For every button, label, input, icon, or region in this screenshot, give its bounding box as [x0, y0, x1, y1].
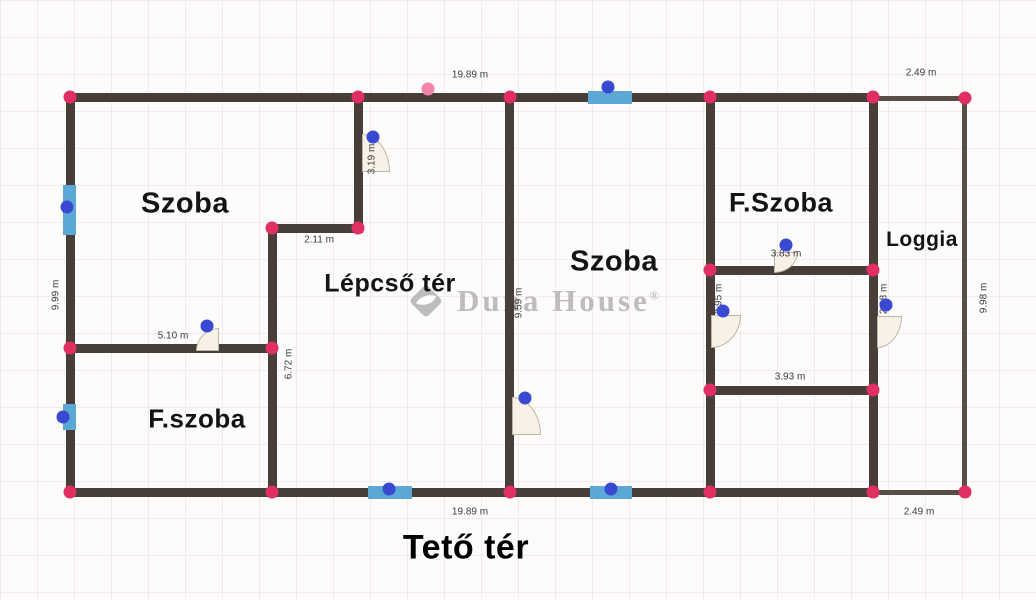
wall-segment[interactable]	[878, 490, 967, 495]
room-label: Szoba	[570, 246, 658, 279]
room-label: Szoba	[141, 188, 229, 221]
corner-handle[interactable]	[266, 222, 279, 235]
registered-mark: ®	[650, 289, 662, 303]
opening-handle[interactable]	[201, 320, 214, 333]
corner-handle[interactable]	[352, 91, 365, 104]
corner-handle[interactable]	[704, 486, 717, 499]
wall-segment[interactable]	[268, 224, 363, 233]
floorplan-canvas: Duna House® Tető tér SzobaLépcső térF.sz…	[0, 0, 1036, 600]
room-label: Lépcső tér	[324, 270, 455, 299]
corner-handle[interactable]	[704, 91, 717, 104]
dimension-label: 3.93 m	[775, 372, 806, 383]
opening-handle[interactable]	[367, 131, 380, 144]
opening-handle[interactable]	[717, 305, 730, 318]
corner-handle[interactable]	[64, 91, 77, 104]
opening-handle[interactable]	[519, 392, 532, 405]
wall-segment[interactable]	[66, 488, 878, 497]
opening-handle[interactable]	[602, 81, 615, 94]
room-label: F.Szoba	[729, 188, 833, 219]
corner-handle[interactable]	[704, 384, 717, 397]
corner-handle[interactable]	[504, 91, 517, 104]
opening-handle[interactable]	[61, 201, 74, 214]
dimension-label: 2.11 m	[304, 235, 334, 246]
corner-handle[interactable]	[959, 92, 972, 105]
dimension-label: 3.19 m	[367, 144, 378, 175]
corner-handle[interactable]	[867, 486, 880, 499]
corner-handle[interactable]	[504, 486, 517, 499]
corner-handle[interactable]	[266, 486, 279, 499]
dimension-label: 2.49 m	[906, 68, 937, 79]
door-swing[interactable]	[711, 315, 741, 348]
wall-segment[interactable]	[878, 96, 967, 101]
corner-handle[interactable]	[704, 264, 717, 277]
opening-handle[interactable]	[57, 411, 70, 424]
corner-handle[interactable]	[867, 384, 880, 397]
dimension-label: 19.89 m	[452, 507, 488, 518]
corner-handle[interactable]	[64, 486, 77, 499]
brand-name: Duna House®	[457, 283, 662, 319]
corner-handle[interactable]	[867, 264, 880, 277]
dimension-label: 5.10 m	[158, 331, 189, 342]
wall-segment[interactable]	[706, 266, 878, 275]
wall-segment[interactable]	[66, 344, 277, 353]
corner-handle[interactable]	[266, 342, 279, 355]
dimension-label: 9.99 m	[51, 280, 62, 311]
corner-handle[interactable]	[64, 342, 77, 355]
corner-handle[interactable]	[867, 91, 880, 104]
dimension-label: 6.72 m	[284, 349, 295, 380]
wall-segment[interactable]	[268, 224, 277, 497]
opening-handle[interactable]	[383, 483, 396, 496]
corner-handle[interactable]	[422, 83, 435, 96]
room-label: F.szoba	[148, 404, 245, 435]
dimension-label: 9.98 m	[979, 283, 990, 314]
dimension-label: 9.59 m	[514, 288, 525, 319]
wall-segment[interactable]	[869, 93, 878, 497]
corner-handle[interactable]	[959, 486, 972, 499]
wall-segment[interactable]	[706, 386, 878, 395]
wall-segment[interactable]	[962, 96, 967, 495]
dimension-label: 2.49 m	[904, 507, 935, 518]
opening-handle[interactable]	[880, 299, 893, 312]
wall-segment[interactable]	[66, 93, 75, 497]
wall-segment[interactable]	[66, 93, 878, 102]
dimension-label: 19.89 m	[452, 70, 488, 81]
opening-handle[interactable]	[605, 483, 618, 496]
opening-handle[interactable]	[780, 239, 793, 252]
door-swing[interactable]	[877, 316, 902, 348]
room-label: Loggia	[886, 228, 958, 252]
plan-title: Tető tér	[403, 529, 529, 568]
corner-handle[interactable]	[352, 222, 365, 235]
